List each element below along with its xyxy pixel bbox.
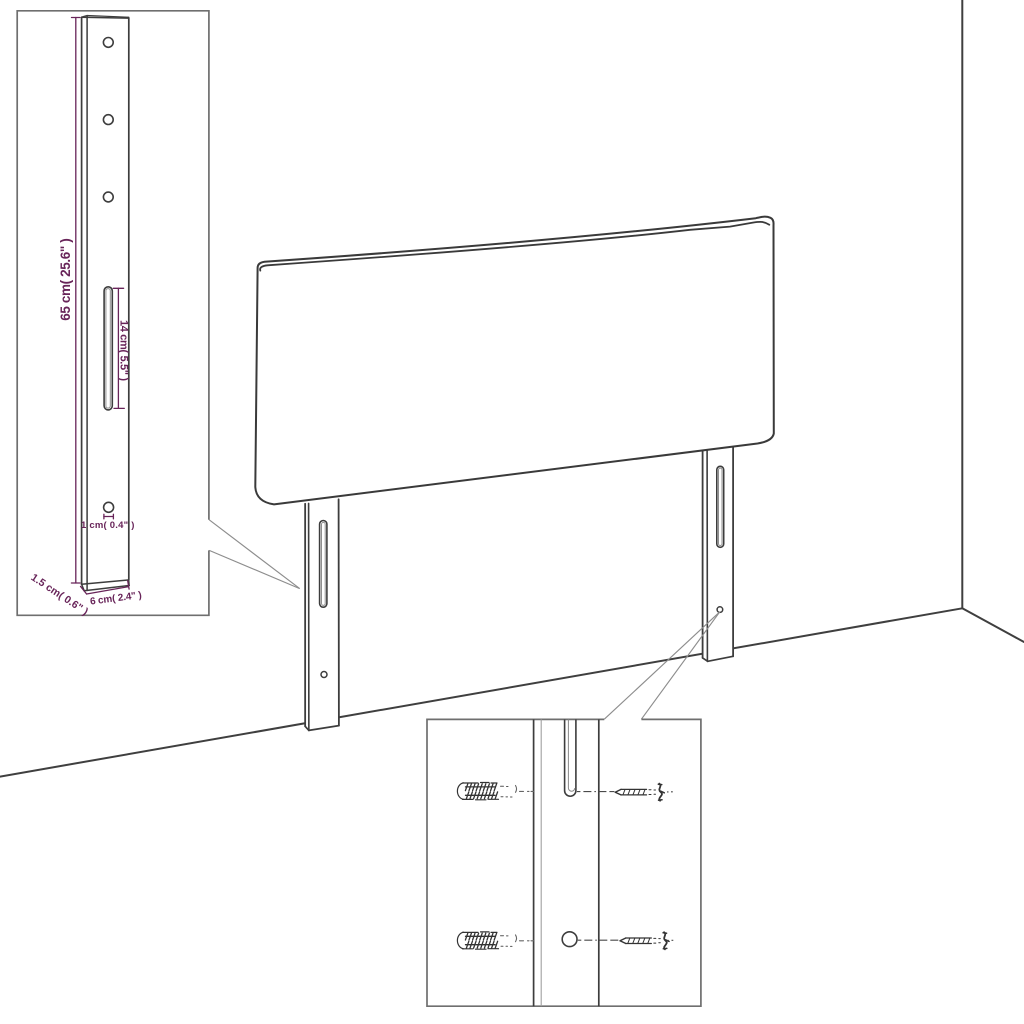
svg-text:14 cm( 5.5" ): 14 cm( 5.5" ) [118, 320, 130, 381]
svg-text:1 cm( 0.4" ): 1 cm( 0.4" ) [81, 520, 135, 531]
svg-text:65 cm( 25.6" ): 65 cm( 25.6" ) [58, 238, 73, 321]
